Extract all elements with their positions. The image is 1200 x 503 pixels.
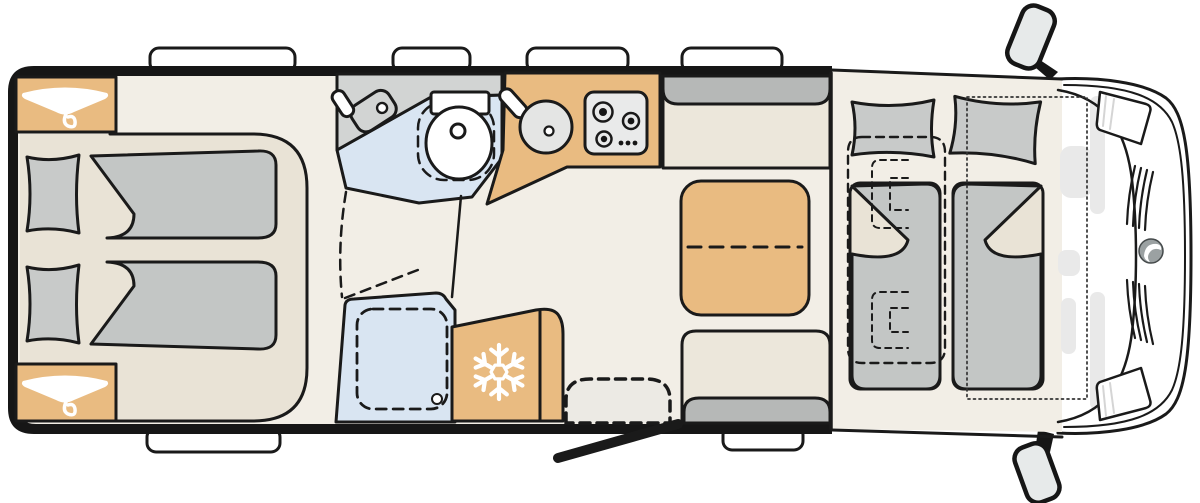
mirror-glass [1011,440,1063,503]
pillow [27,155,79,233]
side-mirror-bottom [1011,430,1063,503]
front-bench-backrest [684,398,830,423]
side-bench-backrest [663,76,830,104]
floorplan-canvas [0,0,1200,503]
mirror-glass [1004,2,1059,72]
side-mirror-top [1004,2,1059,80]
shower-drain [432,394,442,404]
entry-step [566,379,670,423]
hob [585,92,647,154]
toilet-bowl [426,107,492,179]
hob-burner-center [601,136,607,142]
hob-knob-dot [619,141,624,146]
hob-knob-dot [626,141,631,146]
dashboard-panel [1061,298,1076,354]
hob-burner-center [599,108,607,116]
pillow [852,100,934,157]
sink-drain [545,127,554,136]
brand-logo-icon [1139,239,1163,263]
refrigerator [452,309,563,421]
hob-knob-dot [633,141,638,146]
floorplan-drawing [0,0,1200,503]
wardrobe-bottom [16,364,116,421]
toilet-flush-button [451,124,465,138]
dinette [663,76,830,423]
pillow [27,265,79,343]
hob-burner-center [628,118,635,125]
shower-cabin [336,293,455,422]
entry [558,379,678,458]
pillow [950,94,1041,163]
dashboard-panel [1058,250,1080,276]
wardrobe-top [16,77,116,132]
